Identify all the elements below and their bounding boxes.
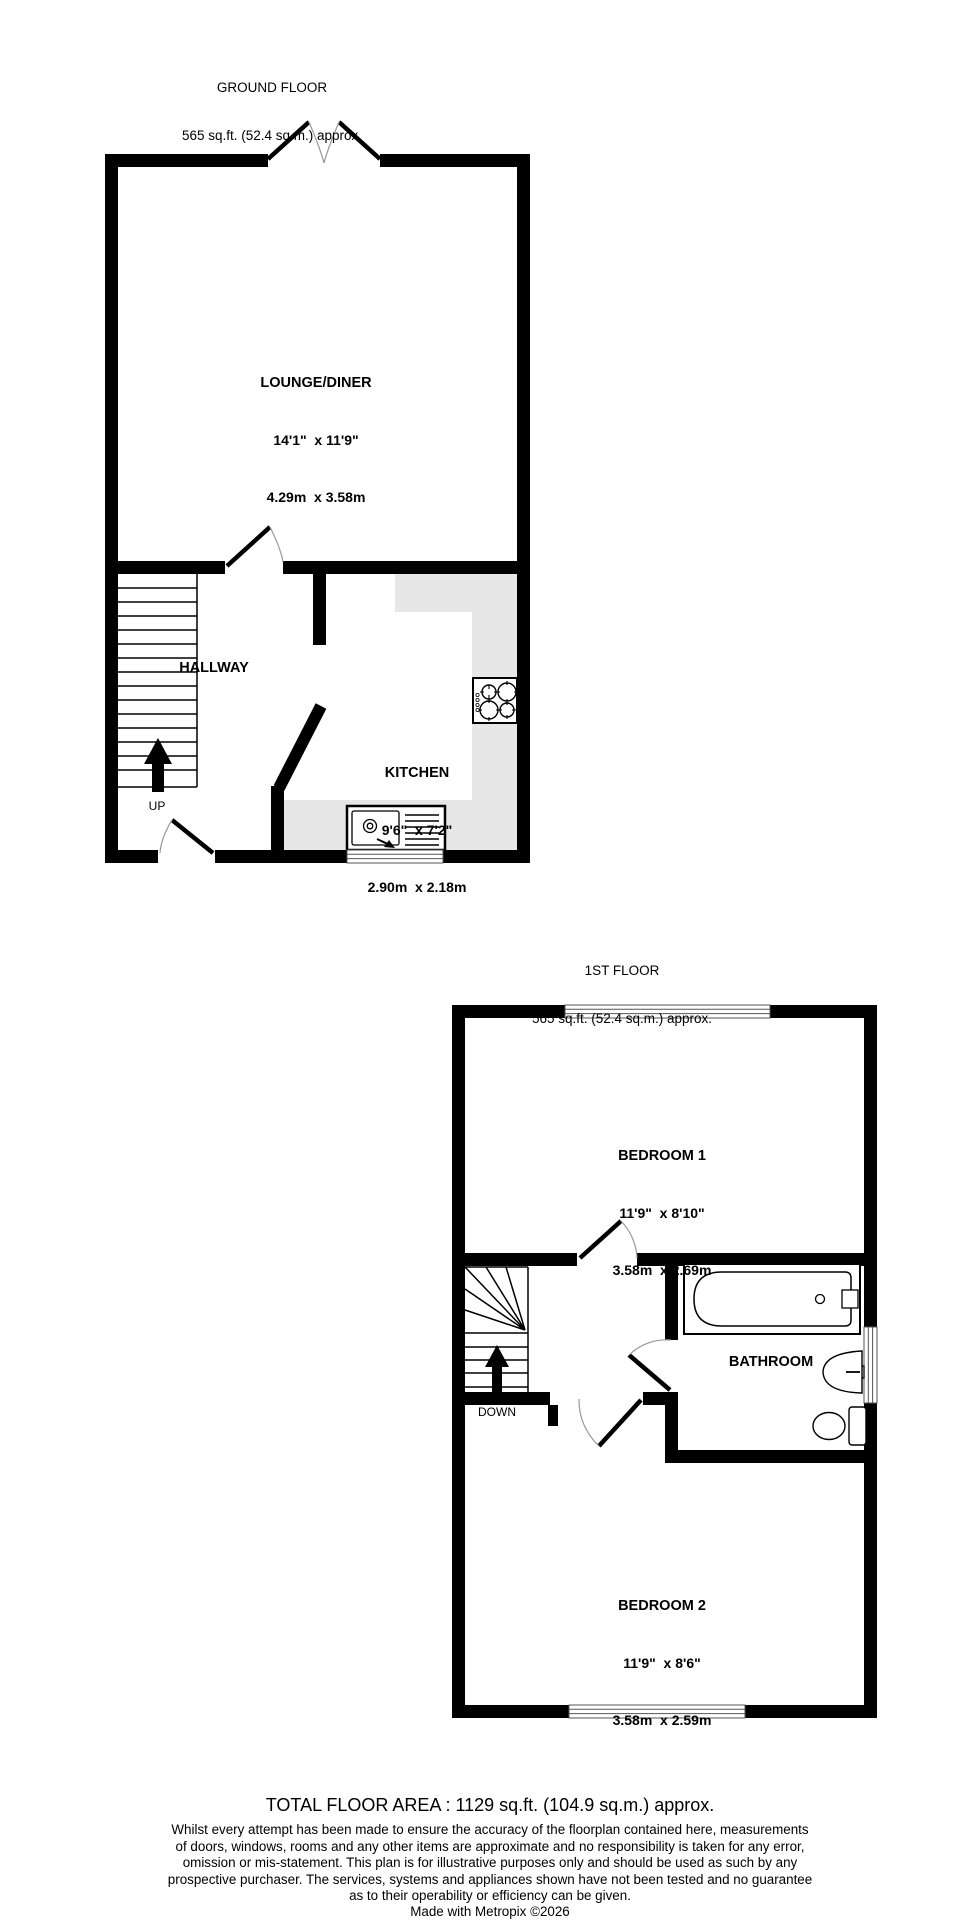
room-label-hallway: HALLWAY (179, 658, 249, 679)
bedroom2-name: BEDROOM 2 (613, 1596, 712, 1617)
first-floor-title-text: 1ST FLOOR (532, 963, 712, 979)
bedroom1-size-metric: 3.58m x 2.69m (613, 1260, 712, 1281)
bedroom2-size-metric: 3.58m x 2.59m (613, 1710, 712, 1731)
kitchen-size-imperial: 9'6" x 7'2" (368, 820, 467, 841)
room-label-bathroom: BATHROOM (729, 1352, 813, 1373)
staircase-ground (118, 574, 197, 792)
ground-floor-area-text: 565 sq.ft. (52.4 sq.m.) approx. (182, 128, 362, 144)
bathroom-door (629, 1340, 671, 1390)
ground-floor-title: GROUND FLOOR 565 sq.ft. (52.4 sq.m.) app… (182, 48, 362, 160)
bathroom-window (864, 1327, 877, 1403)
bedroom1-name: BEDROOM 1 (613, 1146, 712, 1167)
disclaimer-text: Whilst every attempt has been made to en… (80, 1822, 900, 1905)
first-floor-title: 1ST FLOOR 565 sq.ft. (52.4 sq.m.) approx… (532, 931, 712, 1043)
staircase-first (465, 1267, 528, 1394)
total-floor-area: TOTAL FLOOR AREA : 1129 sq.ft. (104.9 sq… (266, 1795, 715, 1816)
kitchen-size-metric: 2.90m x 2.18m (368, 877, 467, 898)
front-door (160, 820, 213, 853)
basin-icon (823, 1351, 864, 1393)
lounge-door (227, 527, 283, 566)
floorplan-drawing (0, 0, 980, 1922)
lounge-name: LOUNGE/DINER (260, 373, 371, 394)
lounge-size-metric: 4.29m x 3.58m (260, 487, 371, 508)
metropix-credit: Made with Metropix ©2026 (410, 1904, 569, 1919)
room-label-bedroom-1: BEDROOM 1 11'9" x 8'10" 3.58m x 2.69m (613, 1110, 712, 1299)
ground-floor-title-text: GROUND FLOOR (182, 80, 362, 96)
bedroom2-door (579, 1399, 641, 1446)
bedroom1-size-imperial: 11'9" x 8'10" (613, 1203, 712, 1224)
kitchen-name: KITCHEN (368, 763, 467, 784)
bedroom2-size-imperial: 11'9" x 8'6" (613, 1653, 712, 1674)
lounge-size-imperial: 14'1" x 11'9" (260, 430, 371, 451)
up-arrow-icon (144, 738, 172, 792)
toilet-icon (813, 1407, 866, 1445)
first-floor-area-text: 565 sq.ft. (52.4 sq.m.) approx. (532, 1011, 712, 1027)
stairs-down-label: DOWN (478, 1405, 516, 1419)
room-label-bedroom-2: BEDROOM 2 11'9" x 8'6" 3.58m x 2.59m (613, 1560, 712, 1749)
stairs-up-label: UP (149, 799, 166, 813)
room-label-kitchen: KITCHEN 9'6" x 7'2" 2.90m x 2.18m (368, 727, 467, 916)
hob-icon (473, 678, 518, 723)
room-label-lounge-diner: LOUNGE/DINER 14'1" x 11'9" 4.29m x 3.58m (260, 337, 371, 526)
